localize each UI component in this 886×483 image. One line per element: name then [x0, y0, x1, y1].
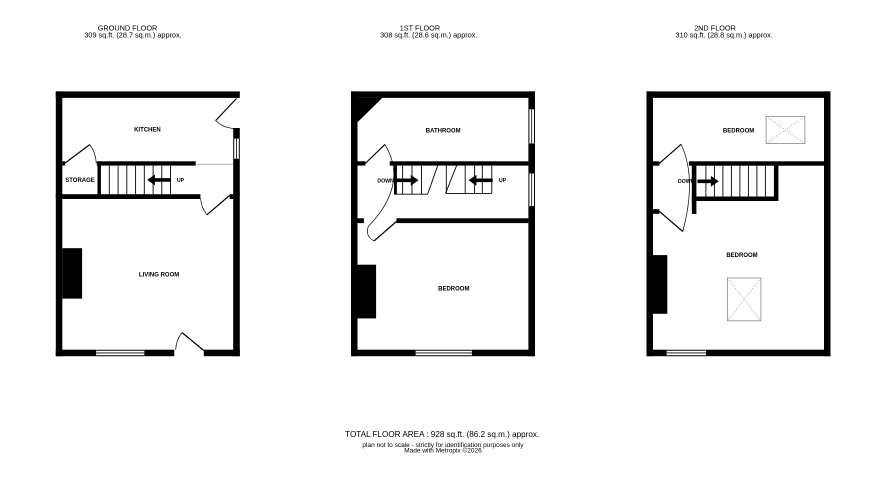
- svg-text:UP: UP: [499, 178, 507, 184]
- svg-text:STORAGE: STORAGE: [65, 178, 95, 184]
- svg-text:BEDROOM: BEDROOM: [723, 128, 754, 134]
- svg-text:DOWN: DOWN: [377, 178, 394, 184]
- svg-text:UP: UP: [177, 178, 185, 184]
- svg-text:BEDROOM: BEDROOM: [438, 286, 469, 292]
- svg-text:Made with Metropix ©2026: Made with Metropix ©2026: [404, 447, 482, 455]
- svg-text:308 sq.ft. (28.6 sq.m.) approx: 308 sq.ft. (28.6 sq.m.) approx.: [380, 31, 477, 40]
- svg-text:BATHROOM: BATHROOM: [426, 128, 461, 134]
- svg-text:DOWN: DOWN: [678, 179, 695, 185]
- svg-text:309 sq.ft. (28.7 sq.m.) approx: 309 sq.ft. (28.7 sq.m.) approx.: [84, 31, 181, 40]
- svg-text:BEDROOM: BEDROOM: [726, 253, 757, 259]
- svg-text:KITCHEN: KITCHEN: [134, 127, 161, 133]
- svg-text:TOTAL FLOOR AREA : 928 sq.ft.: TOTAL FLOOR AREA : 928 sq.ft. (86.2 sq.m…: [345, 430, 539, 439]
- svg-text:310 sq.ft. (28.8 sq.m.) approx: 310 sq.ft. (28.8 sq.m.) approx.: [676, 31, 773, 40]
- svg-text:LIVING ROOM: LIVING ROOM: [139, 273, 179, 279]
